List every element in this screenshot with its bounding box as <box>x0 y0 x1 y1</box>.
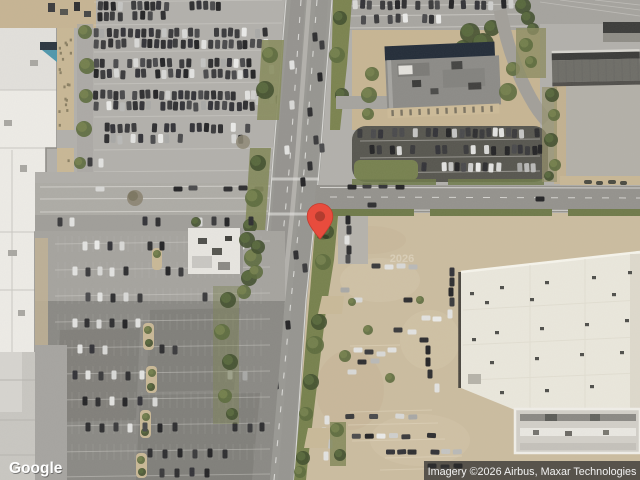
svg-text:Imagery ©2026 Airbus, Maxar Te: Imagery ©2026 Airbus, Maxar Technologies <box>428 466 637 478</box>
svg-text:Google: Google <box>9 460 63 477</box>
